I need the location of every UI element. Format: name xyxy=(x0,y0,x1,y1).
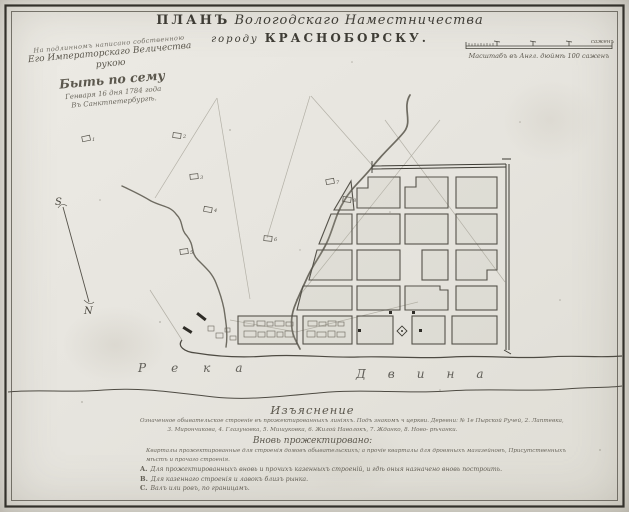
projected-blocks xyxy=(238,177,497,344)
scale-unit-label: саженъ xyxy=(591,39,614,45)
legend-line: мѣстъ и прочаго строенія. xyxy=(140,456,485,465)
hamlet-markers: 1 2 3 4 5 6 7 8 xyxy=(82,132,357,256)
hamlet-number: 8 xyxy=(353,198,356,204)
hamlet-number: 5 xyxy=(190,250,193,256)
legend-line: Означенное обывательское строеніе въ про… xyxy=(140,417,485,426)
title-line-1: ПЛАНЪ Вологодскаго Наместничества xyxy=(155,13,485,28)
legend-item-key: B. xyxy=(140,475,148,483)
hamlet-number: 1 xyxy=(92,137,95,143)
scale-bar: саженъ Масштабъ въ Англ. дюймѣ 100 сажен… xyxy=(466,39,614,60)
hamlet-number: 2 xyxy=(182,134,186,140)
river-label: Река Двина xyxy=(137,361,506,381)
hamlet-number: 7 xyxy=(336,180,340,186)
legend-item-a: A.Для прожектированныхъ вновь и прочихъ … xyxy=(140,465,485,475)
compass-rose: S N xyxy=(55,197,94,317)
title-plan-word: ПЛАНЪ xyxy=(156,13,230,28)
title-territory: Вологодскаго Наместничества xyxy=(234,13,483,28)
legend-item-text: Для казеннаго строенія и лавокъ близъ ры… xyxy=(151,476,308,483)
hamlet-number: 6 xyxy=(274,237,278,243)
legend-item-c: C.Валъ или ровъ, по границамъ. xyxy=(140,484,485,494)
legend-line: Кварталы прожектированные для строенія д… xyxy=(140,447,485,456)
stream-left xyxy=(122,186,227,347)
hamlet-number: 3 xyxy=(200,175,203,181)
scale-caption: Масштабъ въ Англ. дюймѣ 100 саженъ xyxy=(468,52,610,60)
map-sheet: 1 2 3 4 5 6 7 8 Река Двина S N xyxy=(0,0,629,512)
title-line-2: городуКРАСНОБОРСКУ. xyxy=(155,31,485,45)
church-icon xyxy=(397,326,407,336)
legend-item-text: Для прожектированныхъ вновь и прочихъ ка… xyxy=(150,466,502,473)
compass-south-label: S xyxy=(55,197,62,208)
hamlet-number: 4 xyxy=(213,208,217,214)
river-label-part1: Река xyxy=(137,361,268,375)
legend: Изъяснение Означенное обывательское стро… xyxy=(140,403,485,494)
legend-line: 3. Мирончикова, 4. Глазуновка, 5. Мишуко… xyxy=(140,426,485,435)
far-bank xyxy=(8,386,622,398)
title-town-pre: городу xyxy=(211,34,259,45)
legend-item-text: Валъ или ровъ, по границамъ. xyxy=(150,485,249,492)
legend-item-key: A. xyxy=(140,465,147,473)
title-town-name: КРАСНОБОРСКУ. xyxy=(265,31,429,45)
legend-item-b: B.Для казеннаго строенія и лавокъ близъ … xyxy=(140,475,485,485)
legend-item-key: C. xyxy=(140,484,147,492)
legend-heading: Изъяснение xyxy=(140,403,485,417)
map-title: ПЛАНЪ Вологодскаго Наместничества городу… xyxy=(155,13,485,45)
legend-subheading: Вновь прожектировано: xyxy=(140,436,485,446)
river-label-part2: Двина xyxy=(355,367,506,381)
compass-north-label: N xyxy=(83,306,94,317)
river-dvina xyxy=(8,340,622,398)
